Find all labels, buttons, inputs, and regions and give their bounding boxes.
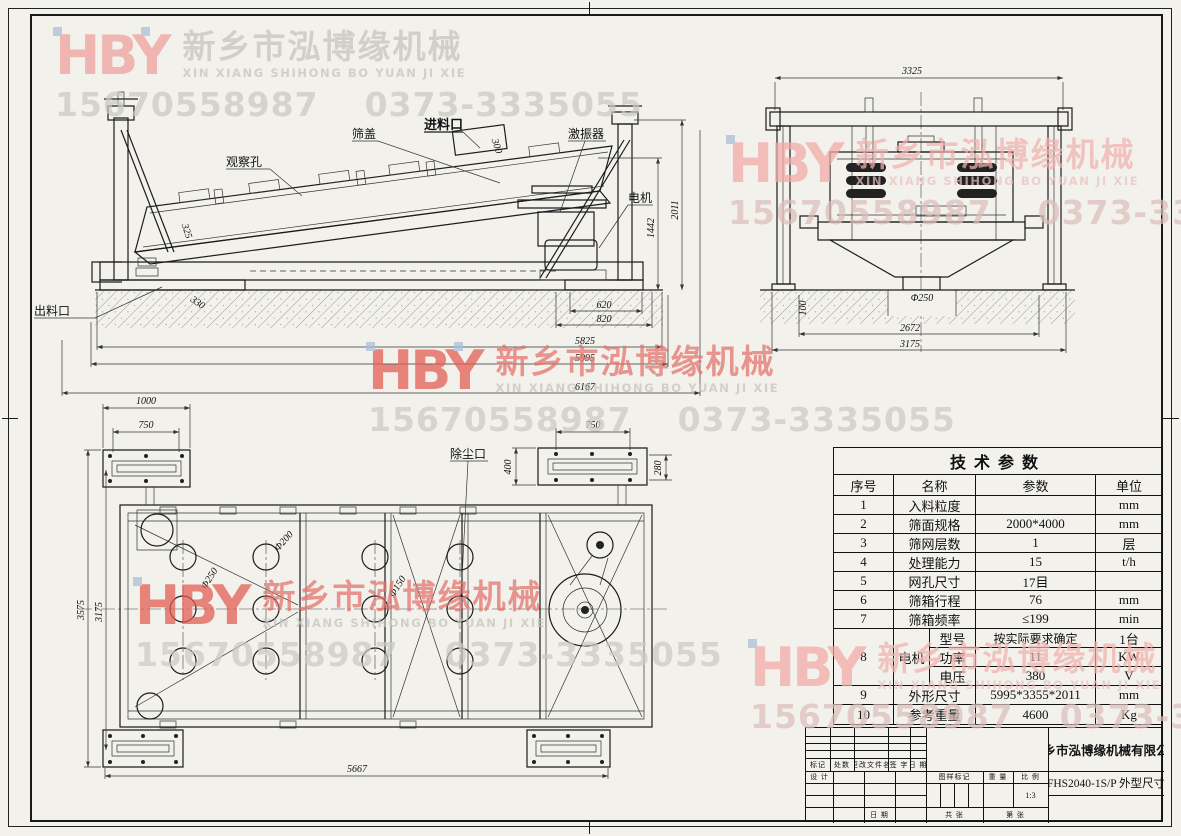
motor-sub-name: 电压 <box>930 667 976 686</box>
col-header-value: 参数 <box>976 475 1096 496</box>
row-no: 10 <box>834 705 894 724</box>
title-block: 标记 处数 更改文件名 签 字 日 期 设 计 日 期 图样标记 重 量 比 例… <box>805 727 1163 822</box>
row-value <box>976 496 1096 515</box>
row-name: 筛箱行程 <box>894 591 976 610</box>
dim-325: 325 <box>179 221 194 240</box>
label-screen-cover: 筛盖 <box>352 126 376 141</box>
end-view: 3325 <box>760 66 1075 353</box>
dim-3175-end: 3175 <box>899 339 920 350</box>
dim-300: 300 <box>489 136 504 155</box>
row-no: 4 <box>834 553 894 572</box>
dim-1000: 1000 <box>136 396 156 407</box>
motor-sub-value: 按实际要求确定 <box>976 629 1096 648</box>
row-unit: mm <box>1096 686 1162 705</box>
row-no: 9 <box>834 686 894 705</box>
row-value: 76 <box>976 591 1096 610</box>
sheets-total-label: 共 张 <box>926 807 983 823</box>
dim-5667: 5667 <box>347 764 368 775</box>
dim-1442: 1442 <box>646 218 657 238</box>
company-name: 新乡市泓博缘机械有限公司 <box>1048 728 1164 771</box>
row-name: 参考重量 <box>894 705 976 724</box>
row-name: 外形尺寸 <box>894 686 976 705</box>
row-no: 5 <box>834 572 894 591</box>
dim-3175-top: 3175 <box>94 602 105 623</box>
dim-2011: 2011 <box>670 200 681 219</box>
row-no: 6 <box>834 591 894 610</box>
label-motor: 电机 <box>628 191 652 205</box>
sheet-number-label: 第 张 <box>983 807 1048 823</box>
dim-750-left: 750 <box>139 420 154 431</box>
tech-params-table: 技术参数 序号 名称 参数 单位 1入料粒度mm 2筛面规格2000*4000m… <box>833 447 1163 725</box>
dim-620: 620 <box>597 300 612 311</box>
dim-3575: 3575 <box>76 600 87 621</box>
row-name: 筛网层数 <box>894 534 976 553</box>
rev-mark-label: 标记 <box>806 758 830 771</box>
row-no: 3 <box>834 534 894 553</box>
motor-sub-value: 380 <box>976 667 1096 686</box>
table-title: 技术参数 <box>834 448 1162 475</box>
motor-row-name: 电机 <box>894 629 930 686</box>
row-value: ≤199 <box>976 610 1096 629</box>
row-name: 筛面规格 <box>894 515 976 534</box>
row-value: 2000*4000 <box>976 515 1096 534</box>
col-header-name: 名称 <box>894 475 976 496</box>
motor-sub-unit: 1台 <box>1096 629 1162 648</box>
scale-label: 比 例 <box>1013 771 1048 783</box>
row-name: 处理能力 <box>894 553 976 572</box>
dim-hole-250: Φ250 <box>199 566 220 591</box>
dim-6167: 6167 <box>575 382 596 393</box>
label-feed-inlet: 进料口 <box>424 117 463 132</box>
row-name: 入料粒度 <box>894 496 976 515</box>
designer-label: 设 计 <box>806 771 833 783</box>
engineering-drawing-sheet: { "watermark": { "logo": "HBY", "company… <box>0 0 1181 836</box>
motor-sub-unit: V <box>1096 667 1162 686</box>
rev-sign-label: 签 字 <box>888 758 910 771</box>
dim-hole-200: Φ200 <box>272 529 295 553</box>
drawing-mark-label: 图样标记 <box>926 771 983 783</box>
dim-2672: 2672 <box>900 323 920 334</box>
dim-5825: 5825 <box>575 336 595 347</box>
row-no: 7 <box>834 610 894 629</box>
dim-phi250: Φ250 <box>911 293 934 304</box>
motor-sub-name: 型号 <box>930 629 976 648</box>
motor-sub-value: 11 <box>976 648 1096 667</box>
date-label: 日 期 <box>864 807 895 823</box>
label-dust-port: 除尘口 <box>450 446 486 461</box>
drawing-number: FHS2040-1S/P 外型尺寸 <box>1048 771 1164 795</box>
motor-row-no: 8 <box>834 629 894 686</box>
dim-820: 820 <box>597 314 612 325</box>
row-unit: min <box>1096 610 1162 629</box>
row-unit: mm <box>1096 515 1162 534</box>
side-view: 观察孔 筛盖 进料口 300 激振器 电机 出料口 325 330 620 82… <box>34 92 700 396</box>
weight-label: 重 量 <box>983 771 1013 783</box>
rev-file-label: 更改文件名 <box>854 758 888 771</box>
row-name: 筛箱频率 <box>894 610 976 629</box>
label-discharge-outlet: 出料口 <box>34 304 70 318</box>
label-observation-hole: 观察孔 <box>226 155 262 169</box>
dim-750-right: 750 <box>586 420 601 431</box>
rev-date-label: 日 期 <box>910 758 926 771</box>
motor-sub-unit: KW <box>1096 648 1162 667</box>
dim-100: 100 <box>798 301 809 316</box>
col-header-unit: 单位 <box>1096 475 1162 496</box>
top-view: Φ250 Φ200 Φ150 除尘口 1000 750 750 4 <box>76 396 672 779</box>
dim-280: 280 <box>653 461 664 476</box>
row-no: 1 <box>834 496 894 515</box>
spring-stacks <box>846 163 997 198</box>
dim-3325: 3325 <box>901 66 922 77</box>
row-value: 17目 <box>976 572 1096 591</box>
row-value: 5995*3355*2011 <box>976 686 1096 705</box>
row-unit: mm <box>1096 591 1162 610</box>
row-unit: Kg <box>1096 705 1162 724</box>
row-unit: mm <box>1096 496 1162 515</box>
row-no: 2 <box>834 515 894 534</box>
row-unit: 层 <box>1096 534 1162 553</box>
row-value: 15 <box>976 553 1096 572</box>
rev-count-label: 处数 <box>830 758 854 771</box>
dim-hole-150: Φ150 <box>387 574 408 599</box>
dim-400: 400 <box>503 460 514 475</box>
row-unit: t/h <box>1096 553 1162 572</box>
row-value: 1 <box>976 534 1096 553</box>
col-header-no: 序号 <box>834 475 894 496</box>
row-value: 4600 <box>976 705 1096 724</box>
dim-5995: 5995 <box>575 353 595 364</box>
label-exciter: 激振器 <box>568 127 604 141</box>
motor-sub-name: 功率 <box>930 648 976 667</box>
row-unit <box>1096 572 1162 591</box>
scale-value: 1:3 <box>1013 783 1048 807</box>
row-name: 网孔尺寸 <box>894 572 976 591</box>
